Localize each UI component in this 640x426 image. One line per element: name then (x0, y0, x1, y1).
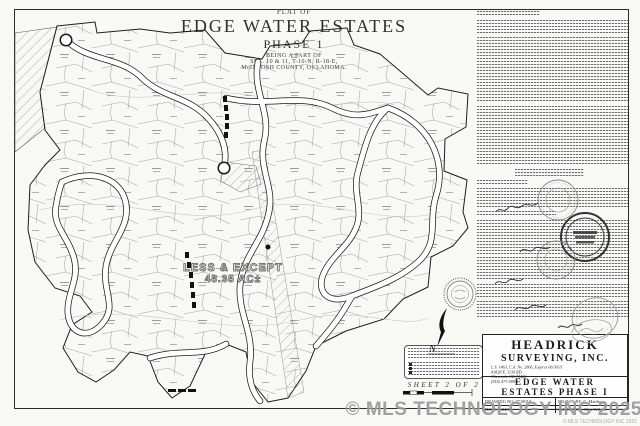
less-except-line1: LESS & EXCEPT (178, 262, 288, 274)
county-seal (444, 278, 476, 310)
plat-document: PLAT OF EDGE WATER ESTATES PHASE 1 BEING… (0, 0, 640, 426)
mls-watermark-small: © MLS TECHNOLOGY INC 2025 (563, 419, 637, 425)
signature-script (495, 279, 523, 284)
signatures (495, 203, 582, 328)
approval-seal (568, 293, 622, 343)
notary-seal (538, 180, 578, 220)
mls-watermark: © MLS TECHNOLOGY INC 2025 (346, 399, 640, 421)
registered-surveyor-seal (561, 213, 609, 261)
north-arrow: N (428, 308, 455, 355)
plat-map-drawing: N (0, 0, 640, 426)
notary-seal-2 (537, 241, 575, 279)
graphic-scale-bar (403, 389, 472, 396)
less-and-except-label: LESS & EXCEPT 48.35 AC± (178, 262, 288, 285)
north-label-glyph: N (428, 344, 437, 355)
signature-script (496, 203, 538, 212)
signature-script (515, 305, 546, 310)
less-except-acreage: 48.35 AC± (178, 274, 288, 285)
signature-script (520, 247, 550, 252)
